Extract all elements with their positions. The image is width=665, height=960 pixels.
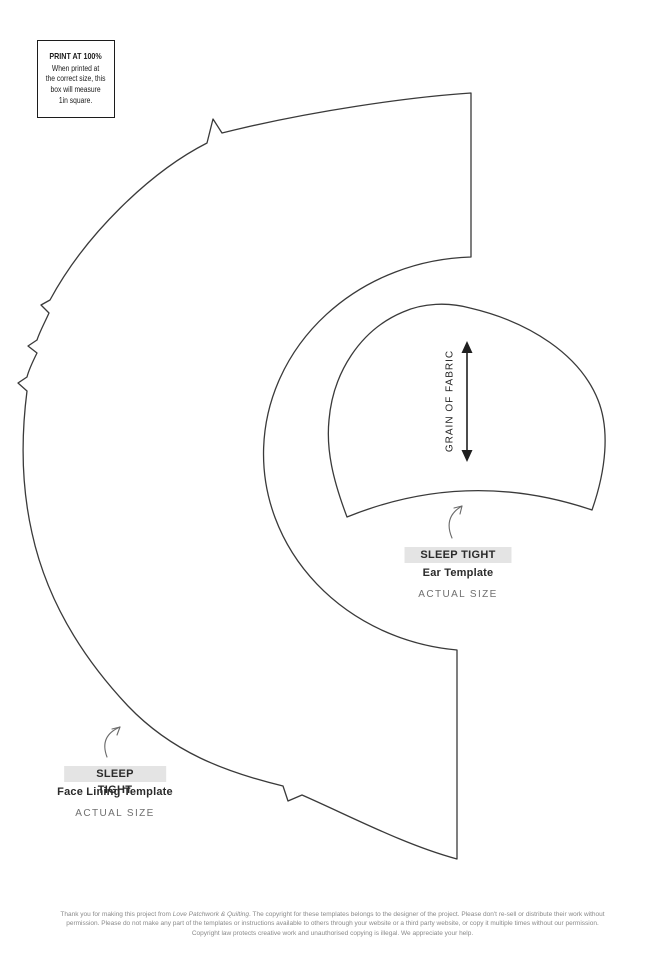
ear-template-label-group: SLEEP TIGHT Ear Template ACTUAL SIZE <box>405 547 512 600</box>
print-scale-title: PRINT AT 100% <box>46 51 106 62</box>
footer-copyright: Thank you for making this project from L… <box>57 910 609 938</box>
ear-template-name: Ear Template <box>423 567 494 579</box>
print-scale-line: the correct size, this <box>46 74 106 85</box>
footer-magazine-name: Love Patchwork & Quilting <box>173 911 249 918</box>
ear-label-arrow <box>449 506 462 538</box>
face-template-size-note: ACTUAL SIZE <box>75 808 155 819</box>
print-scale-text: PRINT AT 100% When printed at the correc… <box>46 51 106 106</box>
face-template-badge: SLEEP TIGHT <box>64 766 166 782</box>
ear-template-badge: SLEEP TIGHT <box>405 547 512 563</box>
print-scale-line: box will measure <box>46 85 106 96</box>
print-scale-box: PRINT AT 100% When printed at the correc… <box>37 40 115 118</box>
footer-text-part1: Thank you for making this project from <box>60 911 172 918</box>
ear-template-size-note: ACTUAL SIZE <box>418 589 498 600</box>
face-template-name: Face Lining Template <box>57 786 173 798</box>
face-template-label-group: SLEEP TIGHT Face Lining Template ACTUAL … <box>57 766 173 819</box>
print-scale-line: When printed at <box>46 64 106 75</box>
template-page: PRINT AT 100% When printed at the correc… <box>0 0 665 960</box>
print-scale-line: 1in square. <box>46 96 106 107</box>
grain-of-fabric-label: GRAIN OF FABRIC <box>445 350 456 452</box>
face-label-arrow <box>105 727 120 757</box>
